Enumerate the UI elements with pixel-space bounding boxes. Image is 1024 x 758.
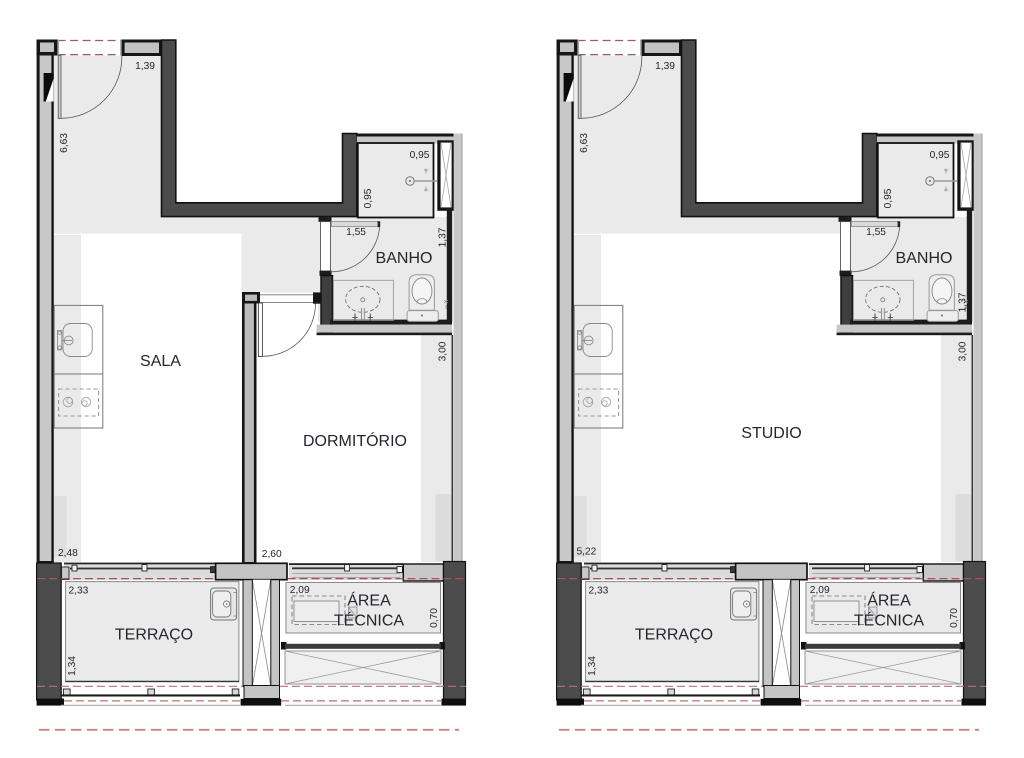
svg-text:1,37: 1,37	[958, 292, 969, 312]
svg-text:2,60: 2,60	[262, 549, 282, 560]
svg-text:STUDIO: STUDIO	[741, 425, 801, 442]
svg-text:2,48: 2,48	[58, 548, 78, 559]
svg-text:1,37: 1,37	[438, 227, 449, 247]
svg-text:5,22: 5,22	[577, 547, 597, 558]
svg-text:SALA: SALA	[140, 353, 181, 370]
svg-text:DORMITÓRIO: DORMITÓRIO	[303, 431, 407, 450]
